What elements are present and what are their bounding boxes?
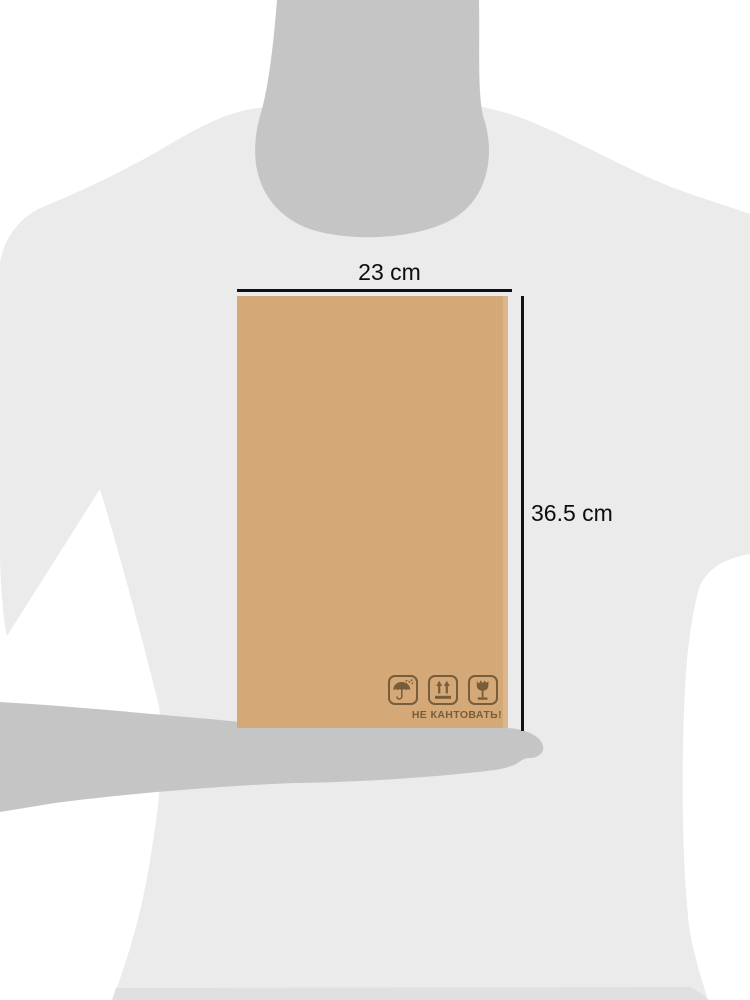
fragile-icon [468,675,498,705]
width-dimension-line [237,289,512,292]
this-side-up-icon [428,675,458,705]
package-box: НЕ КАНТОВАТЬ! [237,296,508,728]
height-dimension-label: 36.5 cm [531,500,613,527]
height-dimension-line [521,296,524,731]
handling-icons [388,675,498,705]
handling-warning-text: НЕ КАНТОВАТЬ! [302,709,502,721]
scene: НЕ КАНТОВАТЬ! 23 cm 36.5 cm [0,0,750,1000]
head-neck-silhouette [255,0,489,237]
width-dimension-label: 23 cm [252,259,527,286]
keep-dry-icon [388,675,418,705]
bottom-shadow-band [112,987,709,1000]
